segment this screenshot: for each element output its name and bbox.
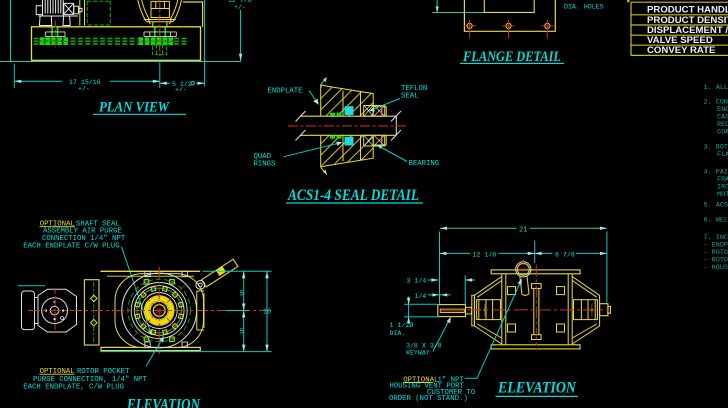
svg-text:EACH ENDPLATE, C/W PLUG: EACH ENDPLATE, C/W PLUG [23, 383, 124, 391]
svg-text:ELEVATION: ELEVATION [126, 397, 201, 408]
svg-text:ACS1-4 SEAL DETAIL: ACS1-4 SEAL DETAIL [287, 187, 419, 204]
svg-text:COATINGS: COATINGS [717, 129, 728, 137]
svg-text:1. ALL DIMENSIONS: 1. ALL DIMENSIONS [704, 84, 728, 92]
svg-text:+/-: +/- [78, 86, 90, 93]
svg-text:1/4: 1/4 [415, 293, 427, 300]
svg-text:CONVEY RATE: CONVEY RATE [647, 45, 716, 56]
svg-text:6. WELD: 6. WELD [704, 217, 728, 225]
svg-text:1 1/2Ø: 1 1/2Ø [390, 321, 414, 329]
svg-text:ORDER (NOT STAND.): ORDER (NOT STAND.) [389, 395, 468, 403]
svg-text:DIA.: DIA. [390, 330, 406, 337]
svg-text:SEAL: SEAL [401, 92, 419, 100]
svg-text:5. ACS: 5. ACS [704, 202, 728, 210]
svg-text:PLAN VIEW: PLAN VIEW [99, 100, 170, 116]
svg-text:FLANGES: FLANGES [717, 151, 728, 159]
svg-text:RINGS: RINGS [254, 160, 277, 168]
svg-text:OPTIONAL: OPTIONAL [40, 368, 75, 376]
svg-text:+/-: +/- [175, 87, 187, 94]
svg-text:ENDPLATE: ENDPLATE [268, 88, 303, 96]
svg-text:+/-: +/- [234, 4, 246, 11]
svg-text:3 1/4: 3 1/4 [407, 278, 427, 285]
svg-text:10: 10 [263, 309, 271, 317]
svg-text:ELEVATION: ELEVATION [497, 380, 577, 397]
svg-text:5: 5 [240, 291, 244, 299]
svg-text:21: 21 [519, 226, 527, 234]
svg-text:FLANGE DETAIL: FLANGE DETAIL [462, 49, 561, 65]
svg-text:KEYWAY: KEYWAY [406, 350, 430, 357]
svg-text:5: 5 [240, 329, 244, 337]
svg-text:DIA. HOLES: DIA. HOLES [564, 4, 604, 11]
svg-text:8 7/8: 8 7/8 [555, 251, 575, 258]
svg-text:12 1/8: 12 1/8 [473, 251, 497, 258]
svg-text:EACH ENDPLATE C/W PLUG: EACH ENDPLATE C/W PLUG [23, 242, 119, 250]
svg-text:ROTOR POCKET: ROTOR POCKET [77, 368, 130, 376]
svg-text:MOTOR: MOTOR [717, 191, 728, 199]
svg-text:BEARING: BEARING [409, 160, 440, 168]
svg-text:- HOUSING: - HOUSING [704, 264, 728, 272]
